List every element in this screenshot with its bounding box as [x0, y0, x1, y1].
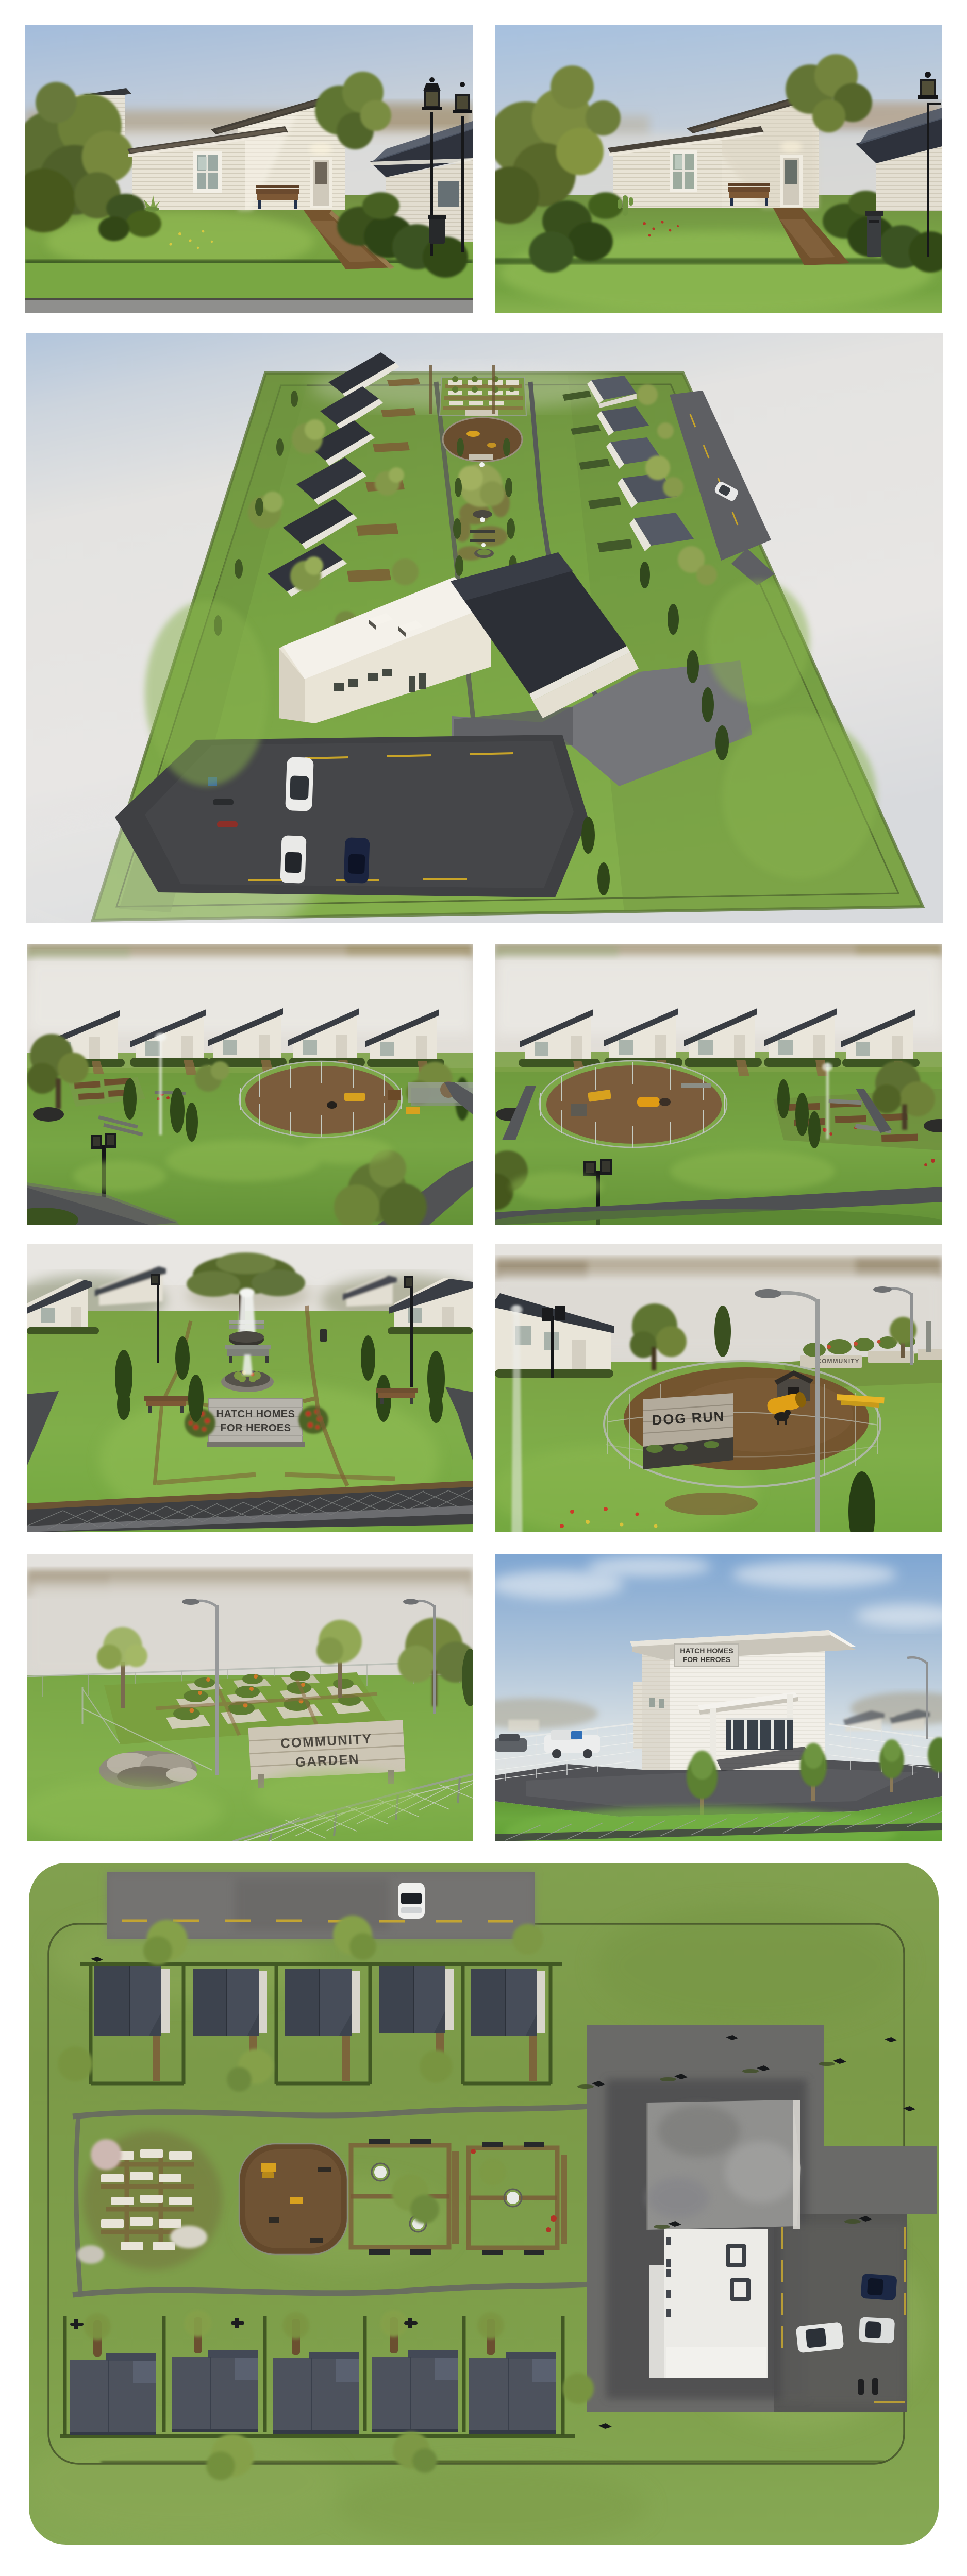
- svg-text:HATCH HOMES: HATCH HOMES: [680, 1647, 733, 1655]
- svg-text:FOR HEROES: FOR HEROES: [683, 1655, 731, 1664]
- svg-text:COMMUNITY: COMMUNITY: [817, 1358, 860, 1365]
- svg-text:HATCH HOMES: HATCH HOMES: [216, 1409, 295, 1420]
- svg-text:FOR HEROES: FOR HEROES: [220, 1422, 291, 1434]
